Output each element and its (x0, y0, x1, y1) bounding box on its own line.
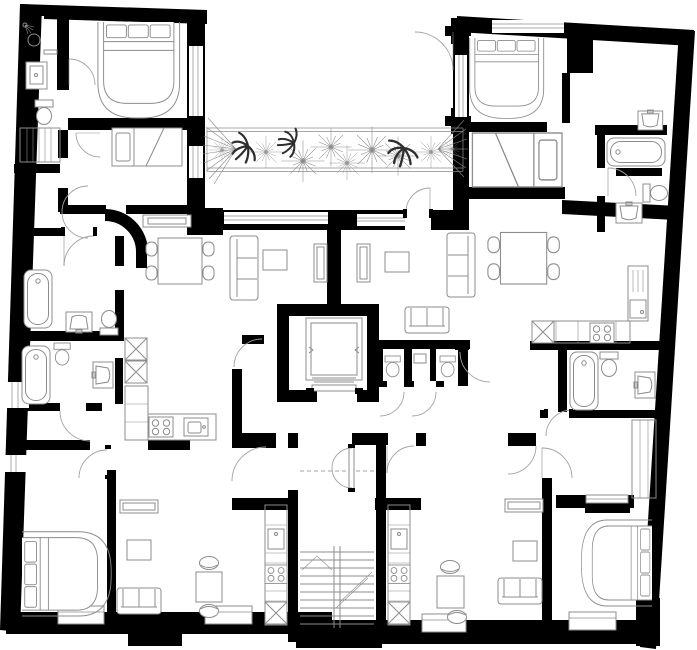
tree-icon (414, 136, 448, 168)
tree-icon (348, 127, 396, 173)
window (455, 55, 467, 117)
coffee-table-icon (513, 541, 537, 561)
chair-icon (448, 611, 467, 624)
cabinet-x-icon (265, 602, 287, 624)
door-swing (76, 133, 100, 157)
single-bed-icon (112, 128, 182, 166)
window (569, 612, 616, 630)
coffee-table-icon (263, 250, 287, 270)
coffee-table-icon (127, 540, 151, 560)
floor-plan-page (0, 0, 697, 650)
door-swing (64, 236, 94, 266)
toilet-icon (440, 356, 455, 377)
fern-icon (274, 125, 307, 159)
chair-icon (441, 561, 460, 574)
window (224, 212, 328, 224)
sofa-icon (230, 236, 258, 300)
door-swing (415, 32, 453, 70)
tv-stand-icon (357, 244, 370, 282)
kitchen (125, 338, 216, 440)
cabinet-x-icon (125, 361, 147, 383)
sofa-icon (405, 307, 449, 333)
chair-icon (200, 605, 219, 618)
stove-icon (265, 565, 287, 583)
basin-icon (414, 354, 426, 363)
cabinet-x-icon (388, 602, 410, 624)
toilet-icon (54, 343, 70, 365)
bathtub-icon (22, 346, 50, 404)
window (586, 495, 628, 503)
dining-table-icon (488, 232, 559, 284)
kitchen (388, 505, 410, 625)
tree-icon (281, 140, 324, 181)
floor-plan-canvas (0, 0, 697, 650)
kitchen (265, 505, 287, 625)
small-table (196, 557, 222, 618)
coffee-table-icon (385, 252, 409, 272)
bathtub-icon (607, 138, 665, 166)
sofa-icon (117, 588, 161, 614)
door-swing (406, 188, 430, 212)
stairs (300, 546, 374, 628)
tree-icon (311, 127, 352, 166)
window (492, 20, 564, 33)
sofa-icon (447, 233, 475, 297)
door-swing (69, 59, 95, 85)
sofa-icon (498, 578, 542, 604)
bathtub-icon (570, 352, 598, 410)
core (300, 318, 374, 628)
double-bed-icon (98, 22, 180, 118)
toilet-icon (35, 100, 53, 125)
stove-icon (149, 417, 173, 437)
stove-icon (590, 323, 614, 343)
door-swing (508, 446, 536, 474)
tree-icon (329, 146, 365, 181)
door-swing (387, 446, 414, 473)
window (357, 214, 405, 226)
single-bed-icon (472, 133, 562, 187)
double-bed-icon (470, 38, 544, 118)
door-swing (546, 410, 572, 436)
door-swing (542, 448, 572, 478)
shelf (44, 50, 57, 54)
toilet-icon (100, 311, 118, 336)
tv-stand-icon (314, 244, 327, 282)
double-bed-icon (22, 532, 111, 616)
fern-icon (233, 133, 255, 163)
sideboard (143, 215, 191, 227)
toilet-icon (385, 356, 400, 377)
window (189, 146, 203, 178)
door-swing (79, 450, 107, 478)
chair-icon (200, 557, 219, 570)
sink-icon (634, 372, 655, 398)
sink-icon (92, 362, 113, 388)
vestibule (300, 446, 374, 490)
door-swing (232, 447, 266, 481)
tv-stand-icon (505, 499, 543, 512)
kitchen-sink-icon (184, 418, 208, 436)
toilet-icon (600, 352, 618, 377)
double-bed-icon (581, 520, 652, 606)
dining-table-icon (146, 238, 214, 284)
window (5, 455, 27, 472)
cabinet-x-icon (125, 338, 147, 360)
sink-icon (26, 62, 47, 89)
tv-stand-icon (120, 500, 158, 513)
stove-icon (388, 565, 410, 583)
sink-icon (638, 110, 663, 130)
door-swing (380, 392, 436, 416)
window (189, 46, 203, 116)
elevator (306, 318, 362, 391)
tall-unit (628, 266, 648, 321)
toilet-icon (643, 184, 668, 202)
bathtub-icon (24, 270, 52, 328)
sink-icon (616, 202, 642, 223)
terrace-planting (203, 118, 468, 184)
cabinet-x-icon (532, 321, 554, 343)
door-swing (60, 411, 90, 441)
sink-icon (66, 312, 92, 333)
